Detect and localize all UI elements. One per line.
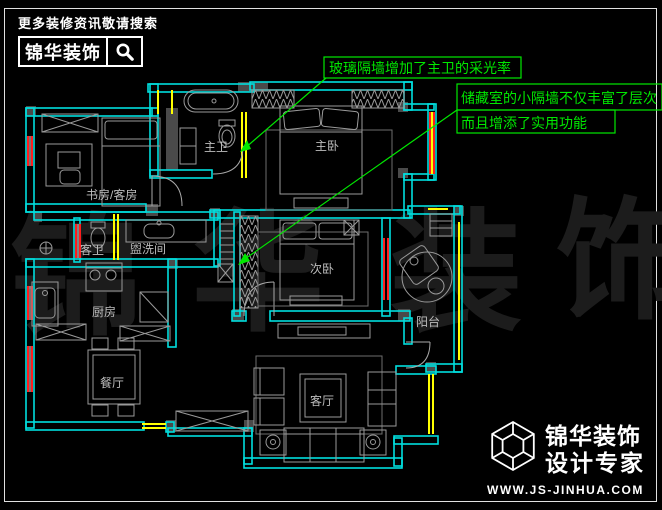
callout-text-storage-2: 而且增添了实用功能 bbox=[461, 115, 587, 131]
floorplan-screenshot: 锦 华 装 饰 bbox=[0, 0, 662, 510]
header-brand-text: 锦华装饰 bbox=[20, 38, 106, 65]
footer-website: WWW.JS-JINHUA.COM bbox=[487, 483, 659, 497]
room-label-second-bedroom: 次卧 bbox=[310, 262, 334, 276]
room-label-dining: 餐厅 bbox=[100, 375, 124, 390]
callout-leader-storage bbox=[242, 110, 457, 261]
footer-subtitle-text: 设计专家 bbox=[545, 450, 645, 476]
search-icon bbox=[106, 38, 141, 65]
furniture-kitchen bbox=[32, 263, 170, 341]
footer-brand-text: 锦华装饰 bbox=[545, 423, 645, 449]
room-label-guest-bath: 客卫 bbox=[80, 242, 104, 257]
cube-logo-icon bbox=[487, 419, 539, 480]
furniture-guest-bath bbox=[40, 220, 206, 254]
room-label-master-bath: 主卫 bbox=[204, 140, 228, 154]
callout-text-storage-1: 储藏室的小隔墙不仅丰富了层次 bbox=[461, 90, 657, 106]
room-label-balcony: 阳台 bbox=[416, 314, 440, 329]
header-tagline: 更多装修资讯敬请搜索 bbox=[18, 13, 158, 32]
room-label-washroom: 盥洗间 bbox=[130, 242, 166, 256]
header-logo: 更多装修资讯敬请搜索 锦华装饰 bbox=[18, 13, 158, 67]
room-label-study: 书房/客房 bbox=[86, 187, 137, 202]
room-label-master-bedroom: 主卧 bbox=[315, 139, 339, 153]
header-brand-box: 锦华装饰 bbox=[18, 36, 143, 67]
room-label-living: 客厅 bbox=[310, 393, 334, 408]
footer-logo: 锦华装饰 设计专家 WWW.JS-JINHUA.COM bbox=[487, 419, 659, 497]
callout-text-glass: 玻璃隔墙增加了主卫的采光率 bbox=[329, 60, 511, 76]
room-label-kitchen: 厨房 bbox=[92, 304, 116, 319]
furniture-balcony bbox=[398, 214, 452, 302]
storage-shelves bbox=[220, 224, 234, 259]
furniture-living bbox=[254, 324, 396, 462]
callouts: 玻璃隔墙增加了主卫的采光率 储藏室的小隔墙不仅丰富了层次 而且增添了实用功能 bbox=[238, 57, 662, 265]
